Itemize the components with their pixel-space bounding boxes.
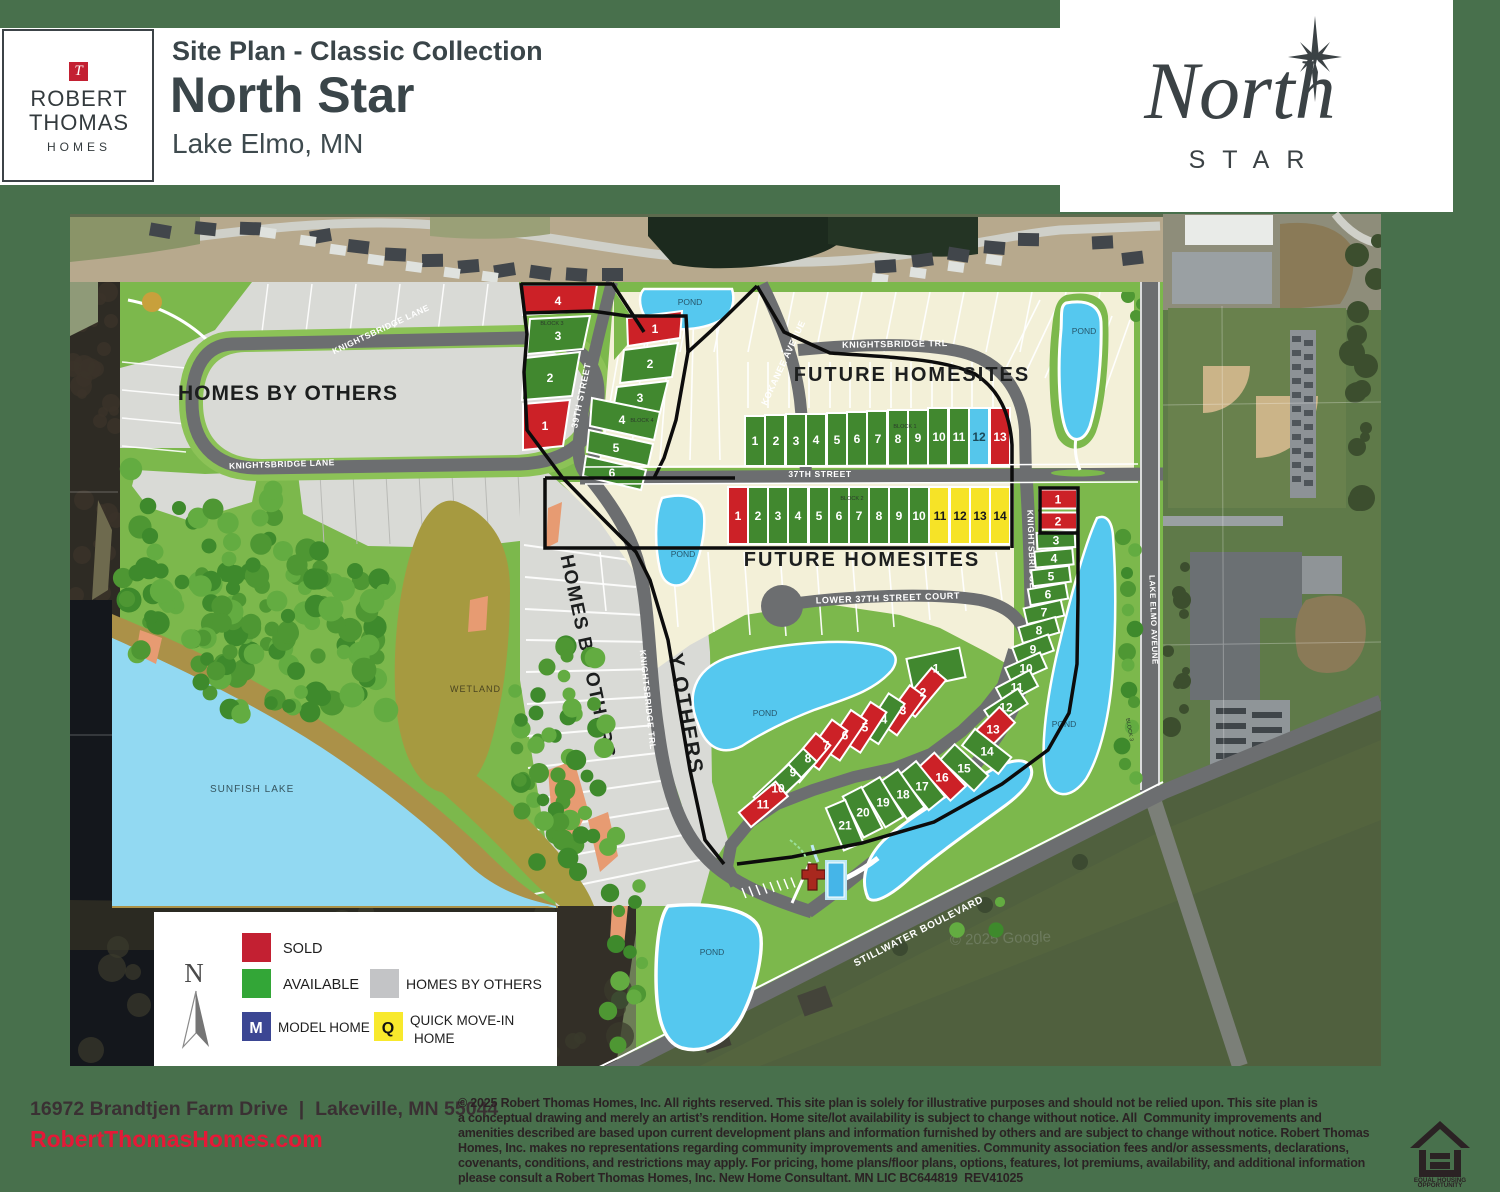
svg-text:4: 4 <box>619 413 626 427</box>
svg-text:SUNFISH LAKE: SUNFISH LAKE <box>210 784 294 795</box>
svg-text:7: 7 <box>856 509 863 523</box>
svg-text:8: 8 <box>805 752 812 766</box>
svg-text:2: 2 <box>773 434 780 448</box>
svg-text:POND: POND <box>753 708 778 718</box>
svg-text:BLOCK 2: BLOCK 2 <box>840 496 863 502</box>
svg-text:3: 3 <box>775 509 782 523</box>
svg-text:10: 10 <box>912 509 926 523</box>
svg-text:3: 3 <box>900 704 907 718</box>
svg-text:9: 9 <box>790 766 797 780</box>
svg-text:14: 14 <box>980 745 994 759</box>
svg-text:HOMES BY OTHERS: HOMES BY OTHERS <box>406 976 542 992</box>
svg-text:HOME: HOME <box>414 1031 455 1046</box>
svg-text:5: 5 <box>1048 570 1055 584</box>
svg-text:3: 3 <box>1053 534 1060 548</box>
svg-text:N: N <box>184 958 204 988</box>
svg-text:BLOCK 3: BLOCK 3 <box>540 321 563 327</box>
svg-text:4: 4 <box>795 509 802 523</box>
svg-text:HOMES BY OTHERS: HOMES BY OTHERS <box>178 382 398 405</box>
svg-text:6: 6 <box>842 729 849 743</box>
svg-text:AVAILABLE: AVAILABLE <box>283 977 359 993</box>
svg-text:18: 18 <box>896 788 910 802</box>
svg-text:KNIGHTSBRIDGE TRL: KNIGHTSBRIDGE TRL <box>842 338 948 350</box>
svg-text:1: 1 <box>542 419 549 433</box>
svg-text:WETLAND: WETLAND <box>450 684 501 694</box>
svg-text:5: 5 <box>613 441 620 455</box>
svg-text:7: 7 <box>823 739 830 753</box>
svg-text:20: 20 <box>856 806 870 820</box>
svg-text:QUICK MOVE-IN: QUICK MOVE-IN <box>410 1013 514 1028</box>
svg-text:4: 4 <box>881 713 888 727</box>
svg-text:6: 6 <box>854 432 861 446</box>
svg-text:13: 13 <box>986 723 1000 737</box>
svg-text:10: 10 <box>771 782 785 796</box>
svg-text:SOLD: SOLD <box>283 941 323 957</box>
svg-text:2: 2 <box>920 686 927 700</box>
svg-text:2: 2 <box>547 371 554 385</box>
svg-text:BLOCK 1: BLOCK 1 <box>893 424 916 430</box>
svg-text:4: 4 <box>813 433 820 447</box>
svg-text:2: 2 <box>755 509 762 523</box>
svg-text:19: 19 <box>876 796 890 810</box>
svg-text:1: 1 <box>752 434 759 448</box>
svg-text:12: 12 <box>953 509 967 523</box>
svg-text:6: 6 <box>1045 588 1052 602</box>
svg-text:6: 6 <box>836 509 843 523</box>
svg-text:9: 9 <box>915 431 922 445</box>
svg-text:14: 14 <box>993 509 1007 523</box>
svg-text:12: 12 <box>972 430 986 444</box>
svg-text:9: 9 <box>896 509 903 523</box>
svg-text:4: 4 <box>1051 552 1058 566</box>
svg-text:POND: POND <box>700 947 725 957</box>
svg-text:8: 8 <box>876 509 883 523</box>
svg-text:7: 7 <box>875 432 882 446</box>
svg-text:POND: POND <box>678 297 703 307</box>
svg-text:FUTURE HOMESITES: FUTURE HOMESITES <box>744 549 980 571</box>
svg-text:5: 5 <box>862 721 869 735</box>
svg-text:21: 21 <box>838 819 852 833</box>
svg-text:1: 1 <box>735 509 742 523</box>
svg-text:OPPORTUNITY: OPPORTUNITY <box>1418 1182 1464 1187</box>
svg-text:1: 1 <box>933 662 940 676</box>
svg-text:11: 11 <box>757 798 770 812</box>
svg-text:MODEL HOME: MODEL HOME <box>278 1020 370 1035</box>
svg-text:5: 5 <box>816 509 823 523</box>
svg-text:13: 13 <box>993 430 1007 444</box>
svg-text:POND: POND <box>1072 326 1097 336</box>
svg-text:3: 3 <box>555 329 562 343</box>
svg-text:13: 13 <box>973 509 987 523</box>
svg-text:8: 8 <box>1036 624 1043 638</box>
svg-text:11: 11 <box>934 509 947 523</box>
svg-text:7: 7 <box>1041 606 1048 620</box>
svg-text:BLOCK 4: BLOCK 4 <box>630 418 653 424</box>
svg-text:1: 1 <box>652 322 659 336</box>
svg-text:M: M <box>249 1020 262 1037</box>
svg-text:11: 11 <box>953 430 966 444</box>
svg-text:16: 16 <box>935 771 949 785</box>
svg-text:15: 15 <box>957 762 971 776</box>
svg-text:POND: POND <box>671 549 696 559</box>
svg-text:3: 3 <box>793 434 800 448</box>
svg-text:5: 5 <box>834 433 841 447</box>
svg-text:2: 2 <box>1055 515 1062 529</box>
svg-text:3: 3 <box>637 391 644 405</box>
svg-text:1: 1 <box>1055 493 1062 507</box>
svg-text:17: 17 <box>915 780 929 794</box>
svg-text:8: 8 <box>895 432 902 446</box>
svg-text:10: 10 <box>932 430 946 444</box>
svg-text:37TH STREET: 37TH STREET <box>788 469 851 479</box>
svg-text:4: 4 <box>555 294 562 308</box>
svg-text:2: 2 <box>647 357 654 371</box>
svg-text:Q: Q <box>382 1020 394 1037</box>
svg-text:FUTURE HOMESITES: FUTURE HOMESITES <box>794 364 1030 386</box>
